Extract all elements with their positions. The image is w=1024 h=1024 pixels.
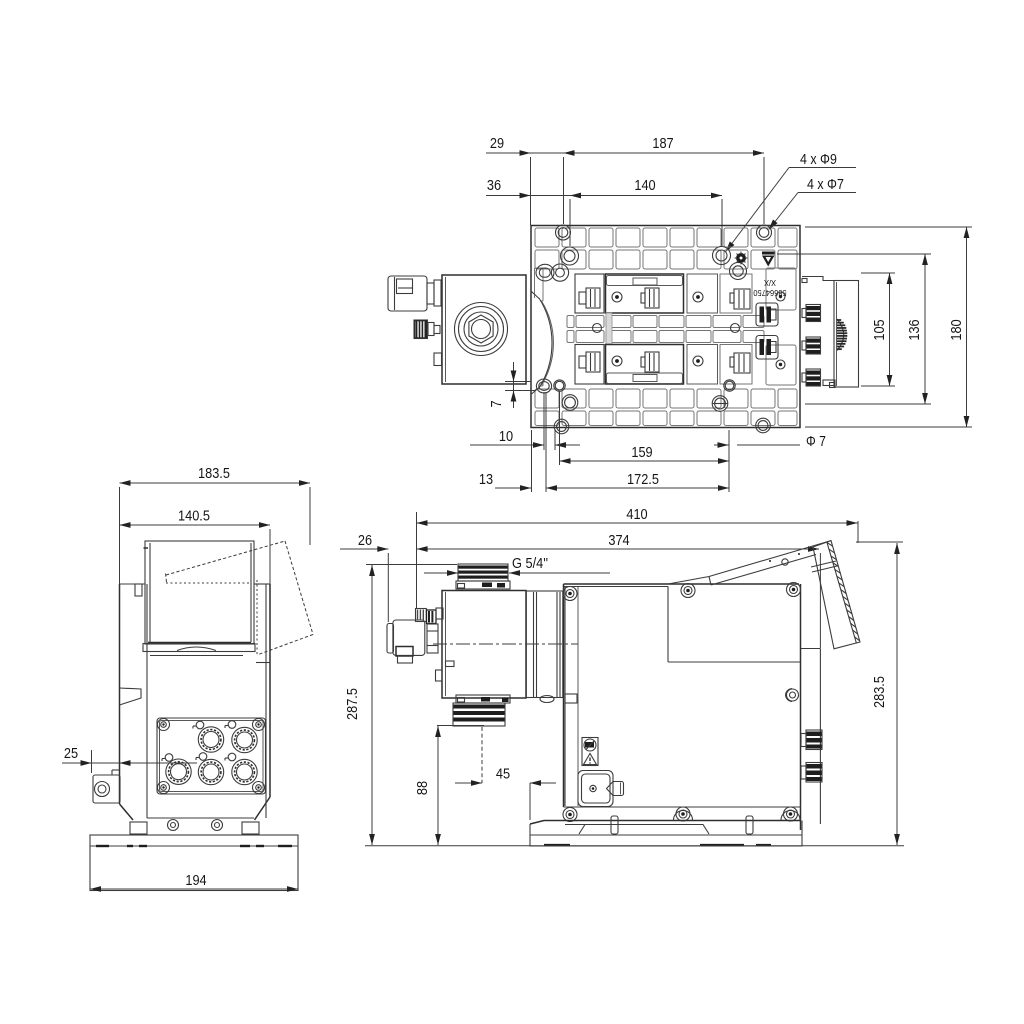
svg-text:140: 140 bbox=[634, 178, 655, 194]
svg-text:105: 105 bbox=[872, 319, 888, 340]
svg-text:10: 10 bbox=[499, 429, 513, 445]
svg-text:4 x Φ9: 4 x Φ9 bbox=[800, 152, 837, 168]
svg-text:Φ 7: Φ 7 bbox=[806, 434, 826, 450]
svg-text:187: 187 bbox=[652, 136, 673, 152]
svg-text:X/X: X/X bbox=[764, 278, 776, 288]
svg-text:180: 180 bbox=[949, 319, 965, 340]
svg-text:287.5: 287.5 bbox=[345, 688, 361, 720]
svg-text:410: 410 bbox=[626, 507, 647, 523]
svg-text:4 x Φ7: 4 x Φ7 bbox=[807, 177, 844, 193]
svg-text:45: 45 bbox=[496, 767, 510, 783]
svg-text:29: 29 bbox=[490, 136, 504, 152]
svg-text:183.5: 183.5 bbox=[198, 466, 230, 482]
svg-text:13: 13 bbox=[479, 472, 493, 488]
svg-text:172.5: 172.5 bbox=[627, 472, 659, 488]
svg-text:36: 36 bbox=[487, 178, 501, 194]
svg-text:88: 88 bbox=[415, 781, 431, 795]
svg-text:140.5: 140.5 bbox=[178, 509, 210, 525]
svg-text:25: 25 bbox=[64, 746, 78, 762]
svg-text:G 5/4'': G 5/4'' bbox=[512, 556, 548, 572]
svg-text:136: 136 bbox=[907, 319, 923, 340]
svg-text:283.5: 283.5 bbox=[872, 676, 888, 708]
svg-text:194: 194 bbox=[185, 873, 206, 889]
svg-text:26: 26 bbox=[358, 533, 372, 549]
svg-text:159: 159 bbox=[631, 445, 652, 461]
svg-text:7: 7 bbox=[489, 400, 505, 407]
svg-text:374: 374 bbox=[608, 533, 629, 549]
